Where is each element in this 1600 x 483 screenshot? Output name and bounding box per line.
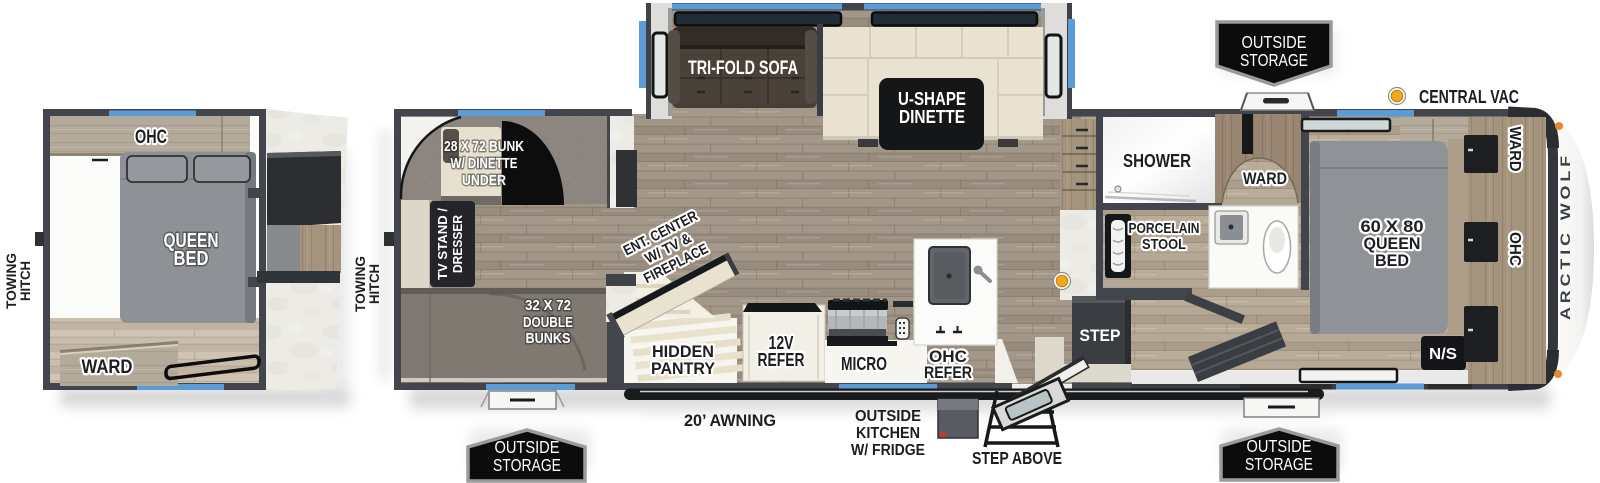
- svg-text:PORCELAIN: PORCELAIN: [1129, 220, 1200, 237]
- svg-text:WARD: WARD: [82, 357, 133, 378]
- svg-text:REFER: REFER: [924, 364, 972, 382]
- svg-text:W/ DINETTE: W/ DINETTE: [451, 155, 518, 172]
- svg-text:MICRO: MICRO: [841, 354, 887, 374]
- svg-text:BUNKS: BUNKS: [526, 331, 571, 347]
- svg-text:STORAGE: STORAGE: [1240, 50, 1308, 70]
- svg-text:U-SHAPE: U-SHAPE: [898, 89, 966, 109]
- svg-text:STEP ABOVE: STEP ABOVE: [972, 448, 1062, 468]
- svg-text:W/ FRIDGE: W/ FRIDGE: [851, 442, 925, 459]
- svg-text:HIDDEN: HIDDEN: [652, 343, 714, 361]
- svg-text:STEP: STEP: [1080, 327, 1121, 345]
- svg-text:SHOWER: SHOWER: [1123, 150, 1191, 171]
- svg-text:STOOL: STOOL: [1142, 236, 1186, 253]
- svg-text:UNDER: UNDER: [462, 172, 506, 189]
- svg-text:TOWING: TOWING: [353, 256, 368, 312]
- svg-text:CENTRAL VAC: CENTRAL VAC: [1419, 87, 1519, 107]
- svg-text:32 X 72: 32 X 72: [525, 298, 571, 314]
- svg-text:BED: BED: [1375, 251, 1409, 270]
- svg-text:DINETTE: DINETTE: [899, 107, 965, 127]
- svg-text:BED: BED: [174, 248, 209, 270]
- svg-text:KITCHEN: KITCHEN: [856, 425, 920, 442]
- svg-text:WARD: WARD: [1506, 127, 1523, 172]
- svg-text:OUTSIDE: OUTSIDE: [855, 408, 921, 425]
- svg-text:DOUBLE: DOUBLE: [523, 315, 573, 331]
- svg-text:HITCH: HITCH: [367, 264, 382, 304]
- svg-text:OUTSIDE: OUTSIDE: [1242, 32, 1307, 52]
- svg-text:OHC: OHC: [135, 127, 167, 148]
- svg-text:TRI-FOLD SOFA: TRI-FOLD SOFA: [688, 58, 798, 79]
- svg-text:20’ AWNING: 20’ AWNING: [684, 411, 776, 430]
- svg-text:ARCTIC WOLF: ARCTIC WOLF: [1558, 152, 1573, 320]
- svg-text:PANTRY: PANTRY: [651, 360, 715, 378]
- svg-text:TOWING: TOWING: [4, 253, 19, 309]
- svg-text:DRESSER: DRESSER: [451, 215, 465, 273]
- svg-text:28 X 72 BUNK: 28 X 72 BUNK: [444, 138, 524, 155]
- svg-text:OUTSIDE: OUTSIDE: [495, 437, 560, 457]
- svg-text:WARD: WARD: [1243, 170, 1287, 188]
- svg-text:TV STAND /: TV STAND /: [436, 207, 450, 280]
- svg-text:REFER: REFER: [758, 350, 805, 370]
- svg-text:OUTSIDE: OUTSIDE: [1247, 436, 1312, 456]
- svg-text:N/S: N/S: [1429, 346, 1457, 363]
- svg-text:STORAGE: STORAGE: [1245, 454, 1313, 474]
- svg-text:STORAGE: STORAGE: [493, 455, 561, 475]
- svg-text:HITCH: HITCH: [18, 261, 33, 301]
- svg-text:OHC: OHC: [1506, 232, 1523, 266]
